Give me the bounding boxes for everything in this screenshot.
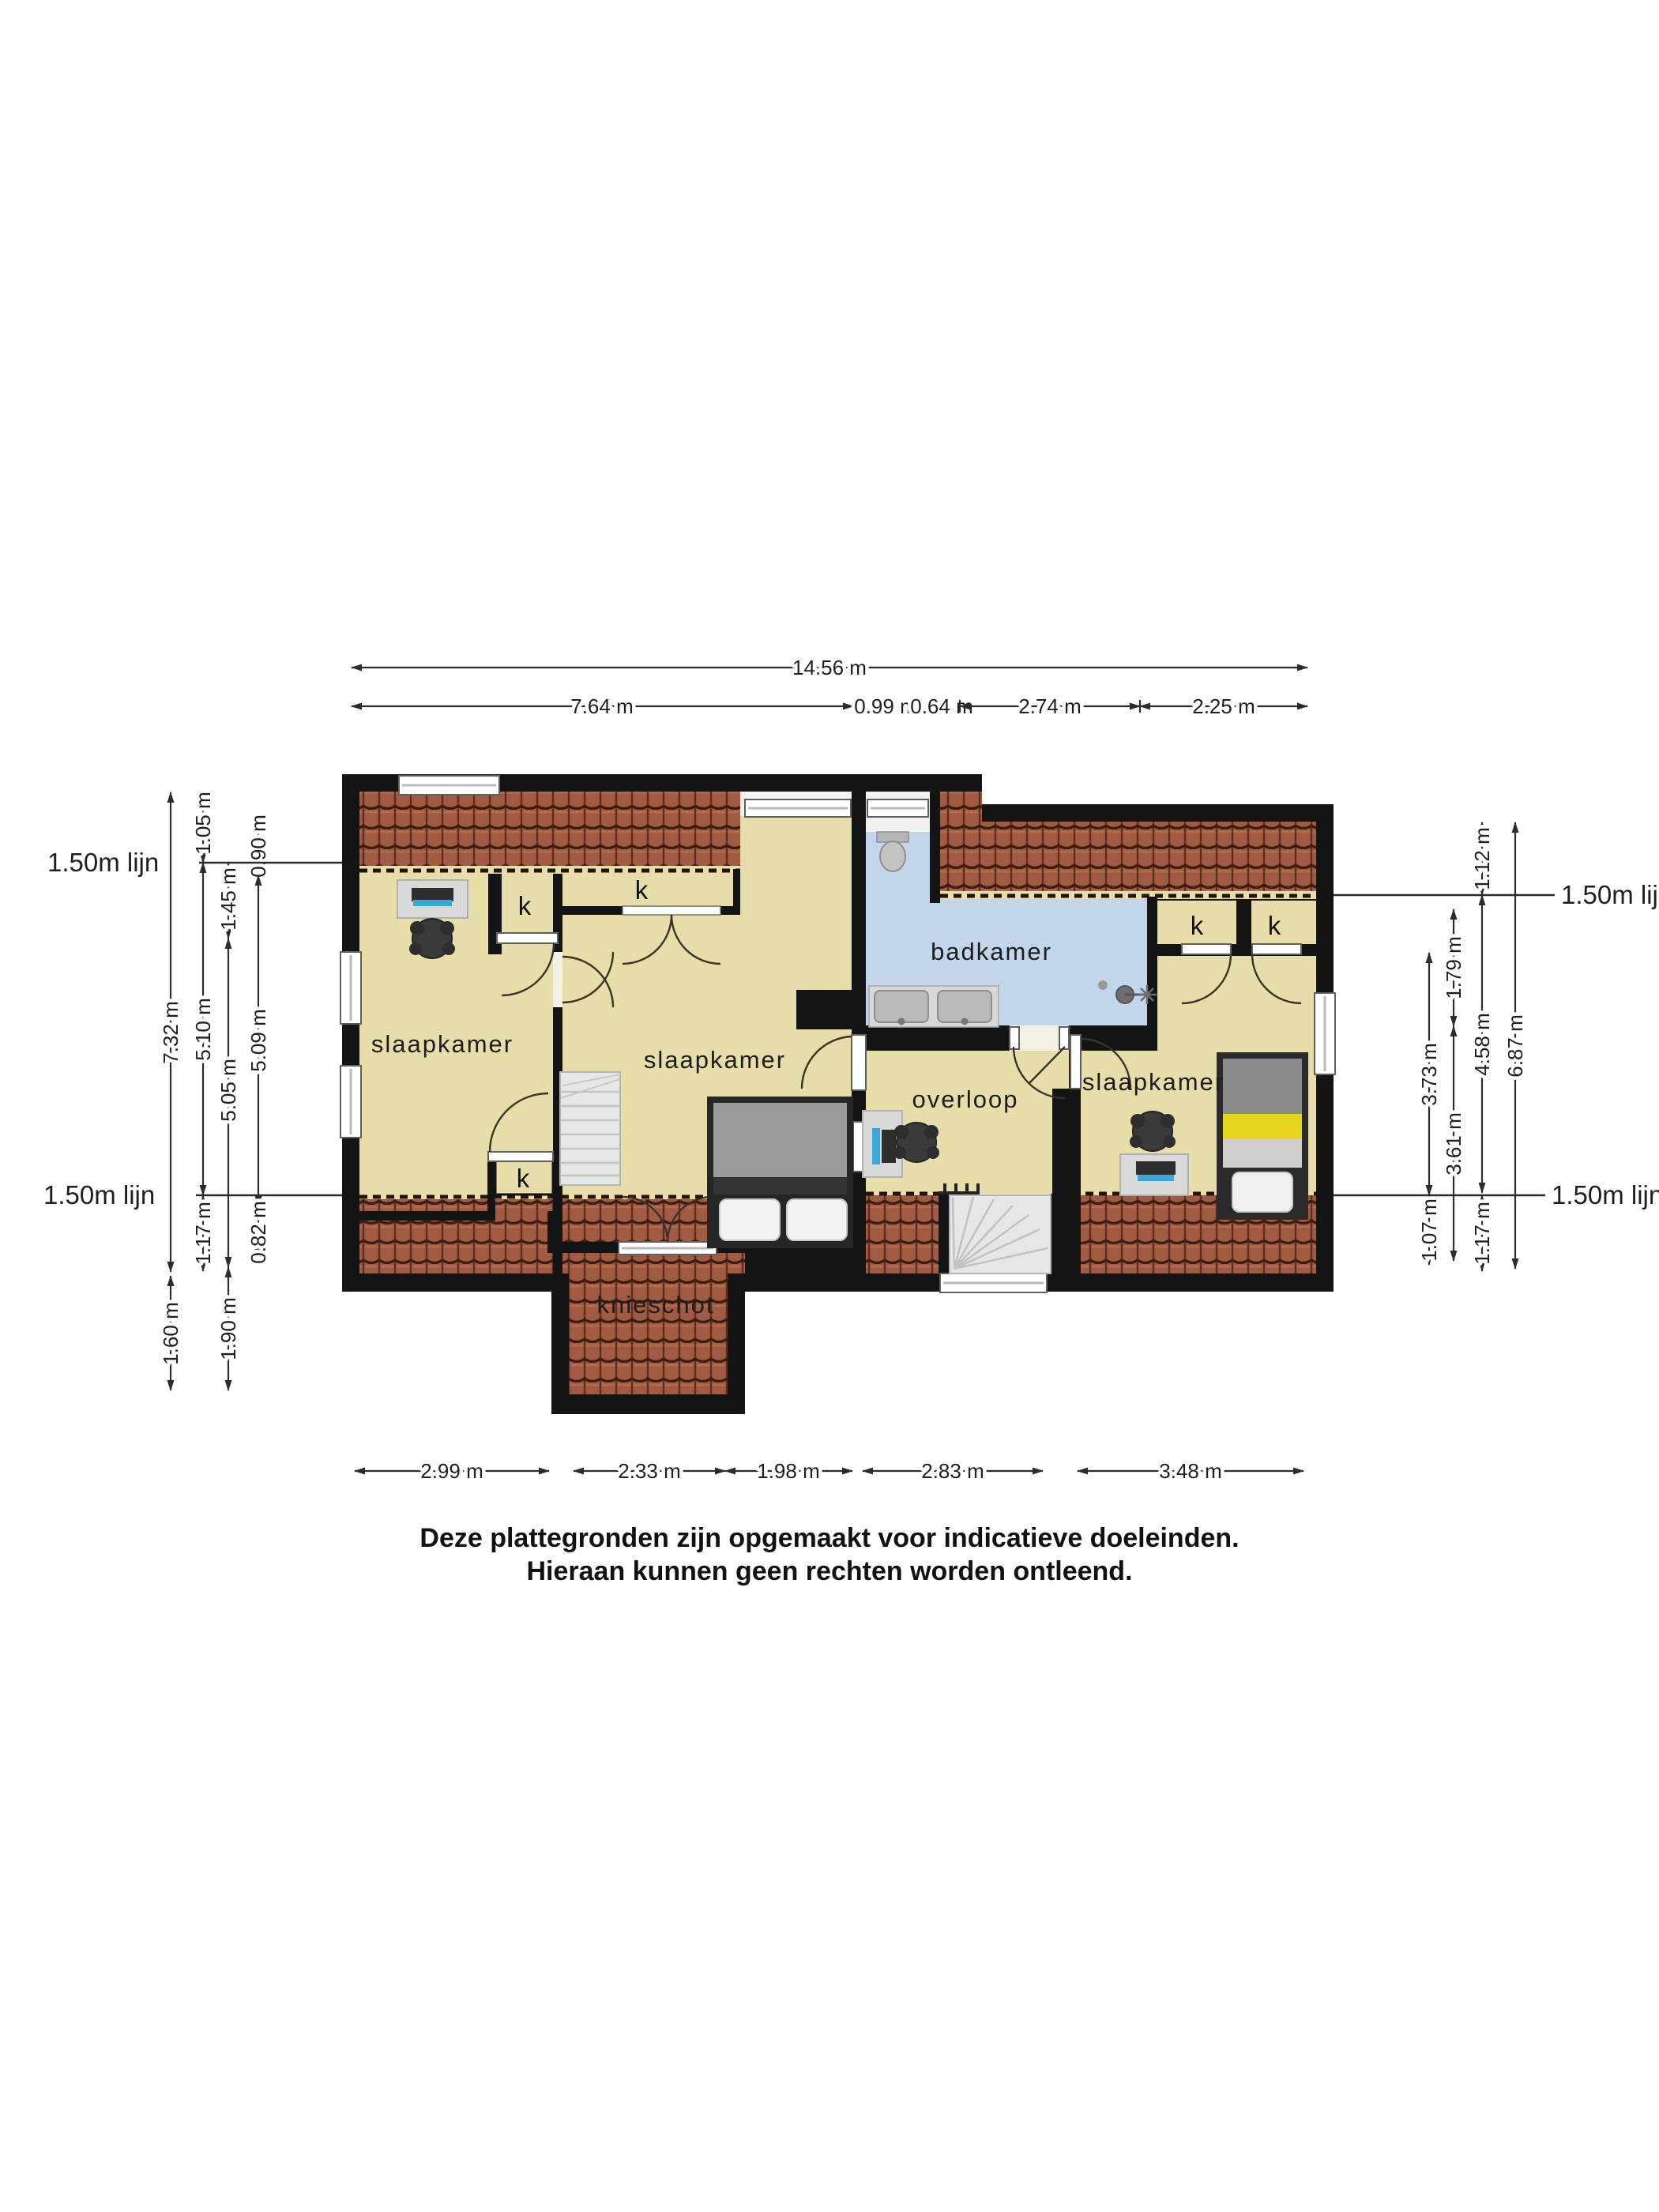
label-landing: overloop [912,1085,1019,1113]
dim-left-090: 0.90 m [246,814,270,878]
dim-top-4: 2.74 m [1018,694,1082,718]
double-sink-icon [869,986,999,1027]
dimensions-right: 3.73 m 1.07 m 1.79 m 3.61 m 1.12 m 4.58 … [1417,822,1527,1271]
disclaimer: Deze plattegronden zijn opgemaakt voor i… [419,1523,1239,1586]
label-bedroom-right: slaapkamer [1082,1068,1224,1096]
dim-bottom-1: 2.99 m [420,1459,483,1483]
floorplan-drawing: 14.56 m 7.64 m 0.99 m 0.64 m 2.74 m 2.25… [0,0,1659,2212]
dim-left-190: 1.90 m [216,1297,240,1360]
window-toilet-nook [867,799,928,817]
window-left-2 [340,1066,361,1138]
dim-left-105: 1.05 m [191,792,215,855]
dim-left-509: 5.09 m [246,1009,270,1072]
dim-left-510: 5.10 m [191,998,215,1061]
dim-top-2: 0.99 m [854,694,917,718]
bed-middle-bedroom [707,1097,853,1248]
label-bathroom: badkamer [931,938,1052,965]
label-bedroom-left: slaapkamer [371,1030,513,1058]
dim-right-179: 1.79 m [1442,936,1465,999]
label-closet-4: k [1191,911,1204,940]
label-closet-5: k [1268,911,1281,940]
dim-left-145: 1.45 m [216,867,240,931]
dim-right-458: 4.58 m [1470,1013,1494,1076]
window-left-1 [340,952,361,1024]
bed-right-bedroom [1217,1052,1308,1220]
lijn-left-bottom: 1.50m lijn [43,1180,155,1209]
label-closet-3: k [517,1164,530,1193]
dim-bottom-5: 3.48 m [1159,1459,1222,1483]
stair-middle-bedroom [560,1072,620,1185]
chair-icon [409,919,455,958]
window-right-wall [1315,993,1335,1074]
dim-left-117: 1.17 m [191,1202,215,1265]
dim-bottom-2: 2.33 m [618,1459,681,1483]
chair-icon [1130,1112,1176,1151]
dim-right-687: 6.87 m [1503,1014,1527,1078]
dim-right-112: 1.12 m [1470,827,1494,890]
label-knee-wall: knieschot [597,1291,715,1319]
dim-top-1: 7.64 m [570,694,634,718]
disclaimer-line-1: Deze plattegronden zijn opgemaakt voor i… [419,1523,1239,1553]
dim-top-total: 14.56 m [792,656,867,679]
floorplan-page: 14.56 m 7.64 m 0.99 m 0.64 m 2.74 m 2.25… [0,0,1659,2212]
window-top-middle [745,799,851,817]
dim-left-732: 7.32 m [159,1001,182,1064]
dim-top-5: 2.25 m [1192,694,1255,718]
dim-bottom-4: 2.83 m [921,1459,984,1483]
chair-icon [893,1123,939,1162]
window-top-left [399,776,499,795]
lijn-right-top: 1.50m lijn [1561,880,1659,909]
dim-left-160: 1.60 m [159,1302,182,1365]
label-closet-2: k [635,875,649,905]
lijn-left-top: 1.50m lijn [47,848,159,877]
label-bedroom-middle: slaapkamer [644,1046,786,1074]
window-bottom-stair [940,1273,1047,1292]
dimensions-left: 7.32 m 1.60 m 1.05 m 5.10 m 1.17 m 1.45 … [159,792,270,1390]
dim-right-107: 1.07 m [1417,1198,1441,1262]
dim-right-117b: 1.17 m [1470,1202,1494,1265]
dimensions-top: 14.56 m 7.64 m 0.99 m 0.64 m 2.74 m 2.25… [352,656,1307,718]
dim-right-373: 3.73 m [1417,1043,1441,1106]
dim-left-082: 0.82 m [246,1201,270,1264]
dim-right-361: 3.61 m [1442,1112,1465,1176]
window-knee-wall [619,1242,717,1255]
dimensions-bottom: 2.99 m 2.33 m 1.98 m 2.83 m 3.48 m [355,1459,1303,1483]
lijn-right-bottom: 1.50m lijn [1552,1180,1659,1209]
disclaimer-line-2: Hieraan kunnen geen rechten worden ontle… [526,1556,1132,1586]
label-closet-1: k [518,891,532,920]
dim-left-505: 5.05 m [216,1059,240,1122]
dim-bottom-3: 1.98 m [757,1459,820,1483]
stair-landing [950,1195,1051,1273]
